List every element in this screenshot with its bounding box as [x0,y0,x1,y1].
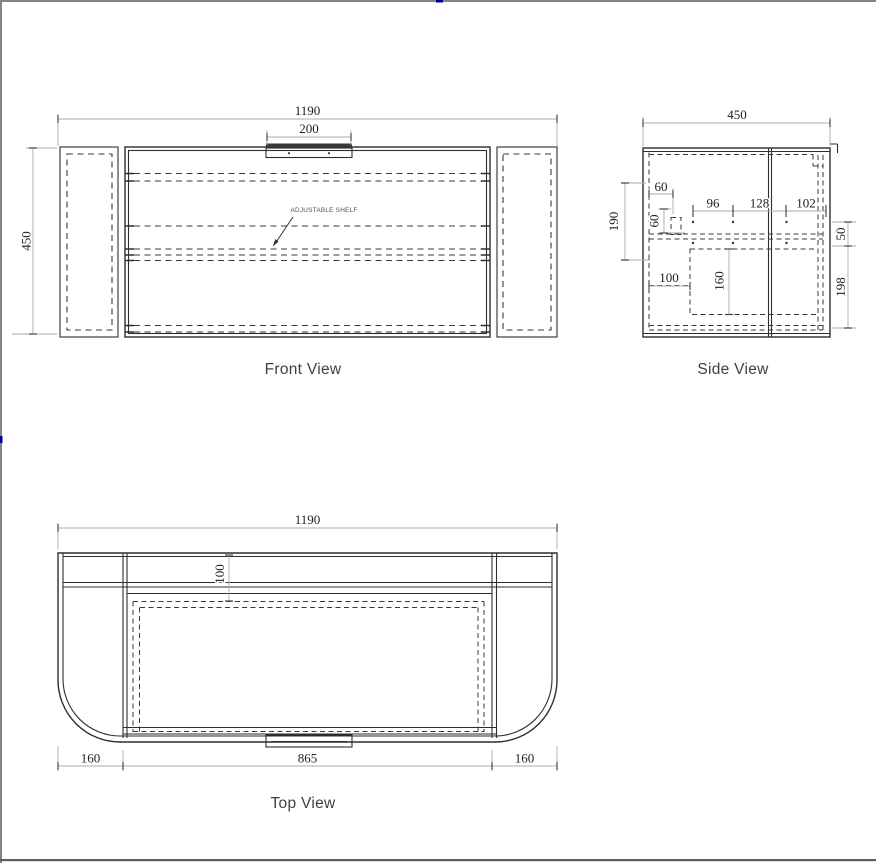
side-view-hidden-lines [649,153,823,332]
side-view: 450 190 60 60 96 128 102 50 198 100 [606,107,856,378]
top-border-accent-marker [436,0,443,3]
drawing-canvas: 1190 200 450 ADJUSTABLE SHELF Front View [0,0,876,863]
side-dim-hinge-height: 60 [647,215,662,228]
front-view: 1190 200 450 ADJUSTABLE SHELF Front View [12,103,557,378]
top-dim-center: 865 [298,751,318,766]
left-border-accent-marker [0,436,3,443]
side-shelf-pin-dots [692,221,788,244]
top-view-label: Top View [270,795,336,812]
adjustable-shelf-annotation: ADJUSTABLE SHELF [290,207,357,214]
leader-line [276,217,294,243]
side-view-label: Side View [697,361,769,378]
top-dim-right-end: 160 [515,751,535,766]
side-dim-hinge-inset: 60 [655,179,668,194]
side-view-object-lines [643,144,838,337]
side-dim-span-a: 96 [707,196,721,211]
front-dim-width: 1190 [295,103,321,118]
side-dim-left-height: 190 [606,212,621,232]
top-view-hidden-lines [133,602,484,733]
front-view-object-lines [60,147,557,337]
technical-drawing-page: 1190 200 450 ADJUSTABLE SHELF Front View [0,0,876,863]
front-dim-height: 450 [19,231,34,251]
front-view-label: Front View [265,361,342,378]
top-handle [266,735,352,747]
page-border-bottom [0,859,876,861]
front-dim-handle: 200 [299,121,319,136]
top-view: 1190 100 160 865 160 Top View [58,512,557,812]
page-border-left [0,0,2,863]
side-dim-span-b: 128 [750,196,770,211]
side-dim-span-c: 102 [796,196,816,211]
top-dim-width: 1190 [295,512,321,527]
adjustable-shelf-callout: ADJUSTABLE SHELF [273,207,358,247]
top-dim-left-end: 160 [81,751,101,766]
side-dim-recess-width: 100 [659,270,679,285]
top-view-dimensions: 1190 100 160 865 160 [58,512,557,771]
front-view-hidden-lines [67,154,551,332]
top-dim-back-depth: 100 [212,564,227,584]
side-dim-recess-height: 160 [712,271,727,291]
side-dim-top-offset: 50 [833,228,848,241]
side-dim-depth: 450 [727,107,747,122]
side-dim-lower-height: 198 [833,277,848,297]
front-view-dimensions: 1190 200 450 [12,103,557,334]
